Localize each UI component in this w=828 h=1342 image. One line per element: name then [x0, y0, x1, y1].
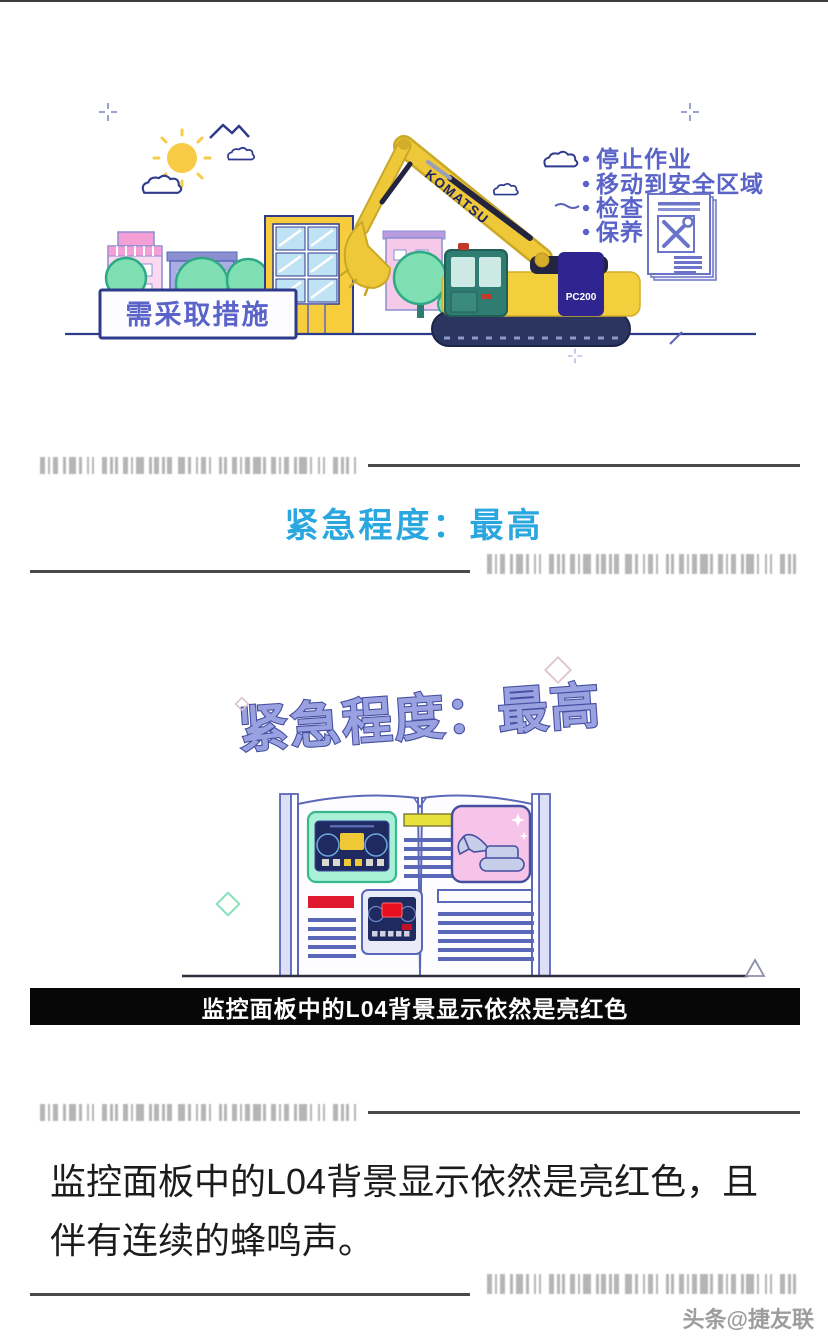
model-label: PC200	[566, 292, 597, 303]
divider-line	[30, 570, 470, 573]
mountain-icon	[210, 125, 249, 138]
maintenance-manual-icon	[648, 194, 716, 280]
top-border	[0, 0, 828, 2]
urgency-heading: 紧急程度：最高	[0, 498, 828, 547]
manual-title: 紧急程度：最高	[236, 677, 603, 758]
excavator-scene-illustration: KOMATSU PC200 需采取措施	[30, 26, 800, 376]
action-sign: 需采取措施	[100, 290, 296, 338]
outlined-highlight-bar	[438, 890, 532, 902]
sparkle-icon	[681, 103, 699, 121]
red-highlight-bar	[308, 896, 354, 908]
barcode-decoration	[40, 1104, 356, 1121]
cloud-icon	[228, 148, 254, 160]
cloud-icon	[143, 176, 181, 193]
triangle-decoration	[746, 960, 764, 976]
caption-text: 监控面板中的L04背景显示依然是亮红色	[202, 990, 629, 1024]
cloud-icon	[544, 152, 577, 167]
divider-line	[30, 1293, 470, 1296]
barcode-decoration	[487, 1274, 800, 1294]
video-caption-bar: 监控面板中的L04背景显示依然是亮红色	[30, 988, 800, 1025]
diamond-decoration	[217, 893, 240, 916]
sparkle-icon	[568, 349, 582, 363]
monitor-panel-normal	[308, 812, 396, 882]
watermark: 头条@捷友联	[683, 1302, 814, 1334]
barcode-decoration	[487, 554, 800, 574]
article-page: KOMATSU PC200 需采取措施	[0, 0, 828, 1342]
checklist-item: 保养	[595, 219, 644, 245]
manual-book-illustration: 紧急程度：最高	[30, 628, 800, 988]
excavator-figure-panel	[452, 806, 530, 882]
checklist-item: 检查	[596, 195, 644, 221]
barcode-decoration	[40, 457, 356, 474]
monitor-panel-alert	[362, 890, 422, 954]
yellow-highlight-bar	[404, 814, 456, 826]
action-sign-label: 需采取措施	[126, 300, 271, 330]
divider-line	[368, 464, 800, 467]
cloud-icon	[494, 184, 518, 195]
article-body: 监控面板中的L04背景显示依然是亮红色，且伴有连续的蜂鸣声。	[50, 1152, 784, 1270]
sparkle-icon	[99, 103, 117, 121]
divider-line	[368, 1111, 800, 1114]
checklist-item: 停止作业	[596, 146, 692, 172]
